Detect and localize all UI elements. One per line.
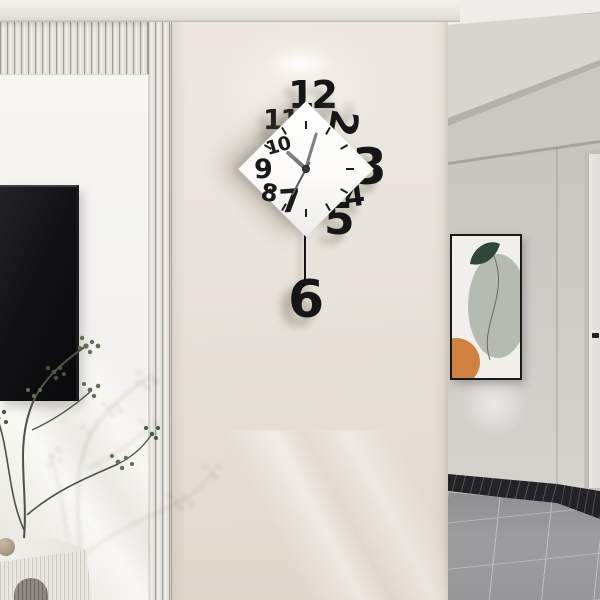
clock-center-cap (302, 165, 310, 173)
pendulum-numeral-6: 6 (288, 274, 324, 326)
crown-molding (0, 0, 460, 22)
sideboard-arch-niche (14, 578, 48, 600)
tick-3 (346, 168, 354, 170)
tick-12 (305, 121, 307, 129)
slat-panel-top (0, 20, 149, 76)
plant (0, 280, 214, 540)
interior-scene: 12 11 2 3 4 5 6 10 9 8 7 (0, 0, 600, 600)
tick-6 (305, 209, 307, 217)
face-numeral-7: 7 (278, 184, 302, 217)
